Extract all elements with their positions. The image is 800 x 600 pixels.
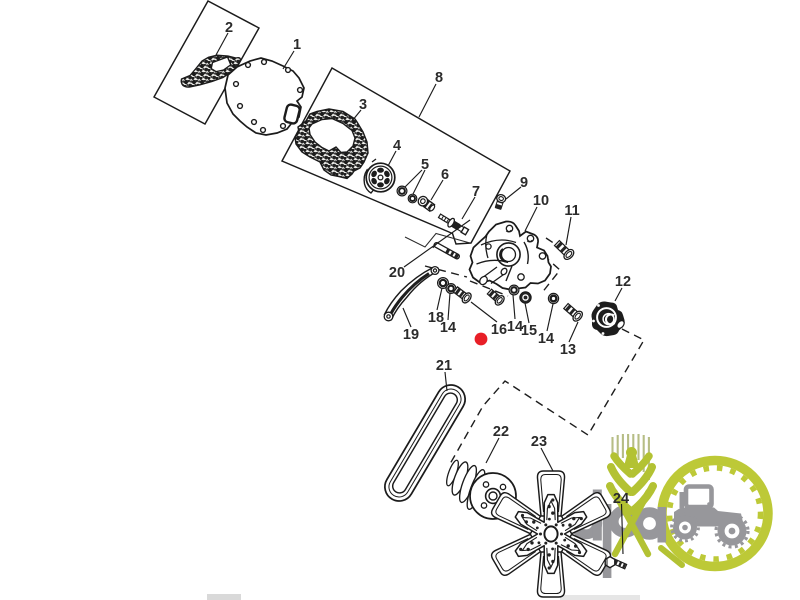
svg-text:5: 5 <box>421 157 429 173</box>
svg-text:3: 3 <box>359 97 367 113</box>
svg-text:1: 1 <box>293 37 301 53</box>
svg-text:24: 24 <box>613 491 629 507</box>
svg-text:22: 22 <box>493 424 509 440</box>
svg-text:18: 18 <box>428 310 444 326</box>
svg-text:9: 9 <box>520 175 528 191</box>
svg-text:7: 7 <box>472 184 480 200</box>
svg-text:6: 6 <box>441 167 449 183</box>
svg-text:21: 21 <box>436 358 452 374</box>
svg-text:4: 4 <box>393 138 401 154</box>
svg-text:15: 15 <box>521 323 537 339</box>
svg-text:14: 14 <box>538 331 554 347</box>
svg-text:23: 23 <box>531 434 547 450</box>
svg-text:12: 12 <box>615 274 631 290</box>
svg-text:8: 8 <box>435 70 443 86</box>
svg-text:19: 19 <box>403 327 419 343</box>
svg-text:16: 16 <box>491 322 507 338</box>
svg-text:2: 2 <box>225 20 233 36</box>
svg-text:11: 11 <box>564 203 579 219</box>
svg-text:20: 20 <box>389 265 405 281</box>
svg-text:13: 13 <box>560 342 576 358</box>
svg-text:10: 10 <box>533 193 549 209</box>
